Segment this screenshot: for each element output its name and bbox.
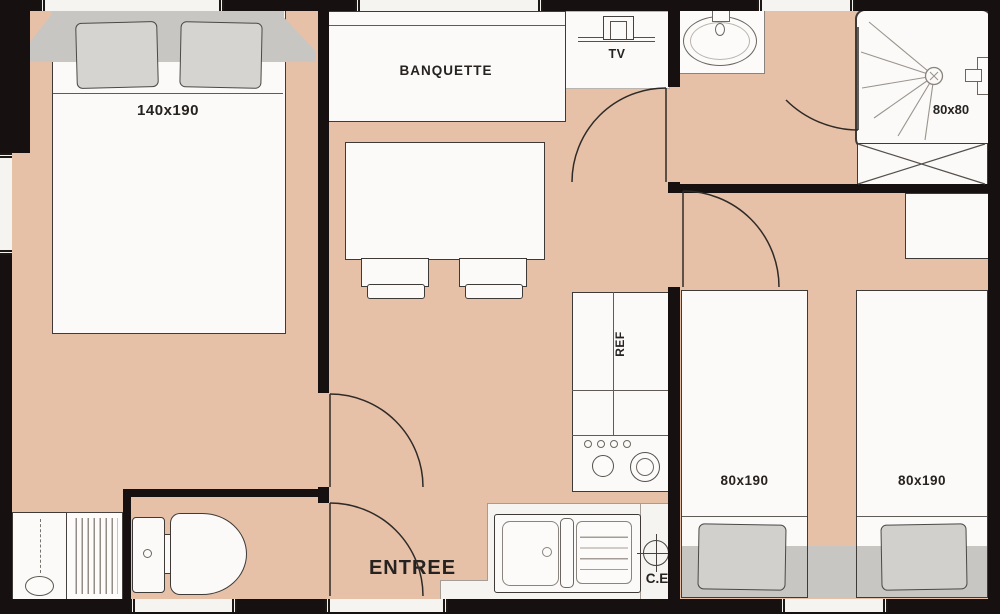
entrance-door-opening xyxy=(325,599,448,612)
shower-size-label: 80x80 xyxy=(920,103,982,117)
chair-2-seat xyxy=(459,258,527,287)
window-bedroom-left xyxy=(0,153,12,255)
window-bedroom-top xyxy=(40,0,224,11)
chair-1-back xyxy=(367,284,425,299)
shower-fixture-arm xyxy=(965,69,982,82)
shelf-unit xyxy=(66,512,123,600)
stove-top-line xyxy=(572,435,668,436)
pillow-right xyxy=(179,21,262,89)
stove-knob-2 xyxy=(597,440,605,448)
bathroom-cabinet xyxy=(857,143,988,187)
wall-wc-left xyxy=(123,489,131,600)
double-bed-size-label: 140x190 xyxy=(52,103,284,120)
wall-bedroom-living xyxy=(318,0,329,393)
single-bed-right-label: 80x190 xyxy=(856,474,988,489)
toilet-flush-button xyxy=(143,549,152,558)
tv-icon-screen xyxy=(610,21,627,39)
sink-drainboard xyxy=(576,521,632,584)
kitchen-floor-step xyxy=(440,580,488,601)
banquette-label: BANQUETTE xyxy=(328,64,564,79)
window-wc-bottom xyxy=(130,599,237,612)
wall-right xyxy=(988,0,1000,614)
dining-table xyxy=(345,142,545,260)
washbasin-faucet xyxy=(712,10,730,22)
stove-burner-small xyxy=(592,455,614,477)
stove-knob-3 xyxy=(610,440,618,448)
tv-icon xyxy=(603,16,634,40)
single-bed-left-label: 80x190 xyxy=(681,474,808,489)
wardrobe-rail-line xyxy=(40,519,41,573)
counter-divider-h1 xyxy=(572,390,668,391)
toilet-tank xyxy=(132,517,165,593)
fridge-label: REF xyxy=(614,320,646,368)
wall-kitchen-bath-top xyxy=(668,0,680,87)
window-bathroom-top xyxy=(757,0,855,11)
bed-sheet-line xyxy=(53,93,283,94)
pillow-left xyxy=(75,21,159,89)
entrance-label: ENTREE xyxy=(340,557,485,579)
corner-shelf xyxy=(905,193,990,259)
pillow-bed-right xyxy=(880,523,967,590)
bed-right-sheet-line xyxy=(857,516,987,517)
washbasin-faucet-stem xyxy=(715,23,725,36)
wardrobe-basin xyxy=(25,576,54,596)
window-bedroom-bottom xyxy=(780,599,888,612)
sink-drain xyxy=(542,547,552,557)
stove-burner-large-inner xyxy=(636,458,654,476)
wall-wc-top xyxy=(123,489,329,497)
stove-knob-1 xyxy=(584,440,592,448)
floorplan-canvas: 140x190 BANQUETTE TV REF C.E xyxy=(0,0,1000,614)
banquette-back-line xyxy=(329,25,565,26)
chair-1-seat xyxy=(361,258,429,287)
wardrobe xyxy=(12,512,68,602)
wall-bath-bedroom xyxy=(668,184,988,193)
pillow-bed-left xyxy=(697,523,786,591)
shelf-unit-slats xyxy=(71,518,118,594)
stove-knob-4 xyxy=(623,440,631,448)
window-living-top xyxy=(355,0,543,11)
bed-left-sheet-line xyxy=(682,516,807,517)
chair-2-back xyxy=(465,284,523,299)
sink-faucet xyxy=(560,518,574,588)
tv-label: TV xyxy=(594,48,640,62)
wall-kitchen-bedroom xyxy=(668,287,680,600)
wall-left-thick xyxy=(0,0,30,153)
water-heater-cross-v xyxy=(656,534,657,572)
drainboard-grooves xyxy=(580,527,628,578)
